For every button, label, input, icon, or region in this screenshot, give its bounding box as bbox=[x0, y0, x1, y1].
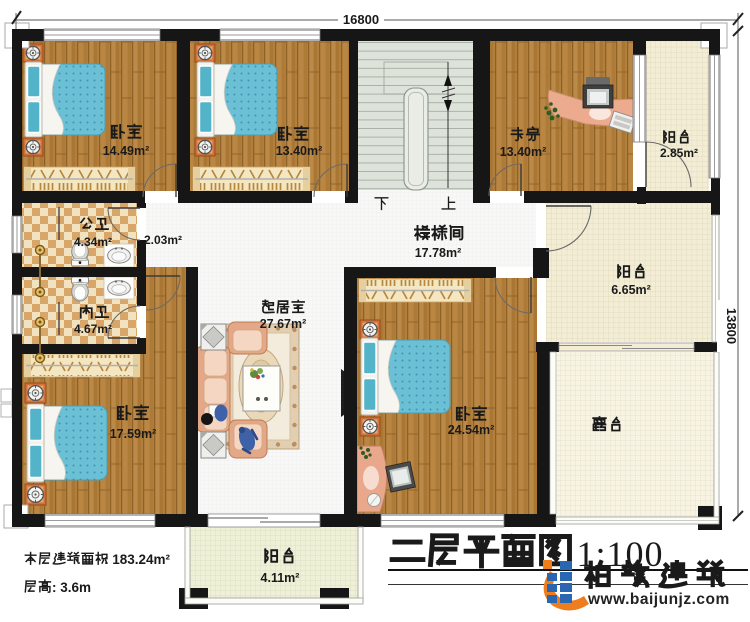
svg-text:4.11m²: 4.11m² bbox=[261, 571, 300, 585]
svg-text:14.49m²: 14.49m² bbox=[103, 144, 150, 158]
svg-text:13800: 13800 bbox=[724, 308, 739, 344]
svg-text:13.40m²: 13.40m² bbox=[276, 144, 323, 158]
svg-text:16800: 16800 bbox=[343, 12, 379, 27]
svg-text:24.54m²: 24.54m² bbox=[448, 423, 495, 437]
svg-text:2.85m²: 2.85m² bbox=[660, 146, 698, 160]
svg-text:13.40m²: 13.40m² bbox=[500, 145, 547, 159]
svg-text:www.baijunjz.com: www.baijunjz.com bbox=[587, 591, 730, 608]
svg-text:17.59m²: 17.59m² bbox=[110, 427, 157, 441]
svg-text:27.67m²: 27.67m² bbox=[260, 317, 307, 331]
svg-text:17.78m²: 17.78m² bbox=[415, 246, 462, 260]
svg-text:6.65m²: 6.65m² bbox=[611, 283, 651, 297]
svg-text:: 3.6m: : 3.6m bbox=[52, 580, 91, 595]
svg-text:4.67m²: 4.67m² bbox=[74, 322, 112, 336]
svg-text:4.34m²: 4.34m² bbox=[74, 235, 112, 249]
svg-text:2.03m²: 2.03m² bbox=[144, 233, 182, 247]
svg-text:: 183.24m²: : 183.24m² bbox=[104, 552, 171, 567]
